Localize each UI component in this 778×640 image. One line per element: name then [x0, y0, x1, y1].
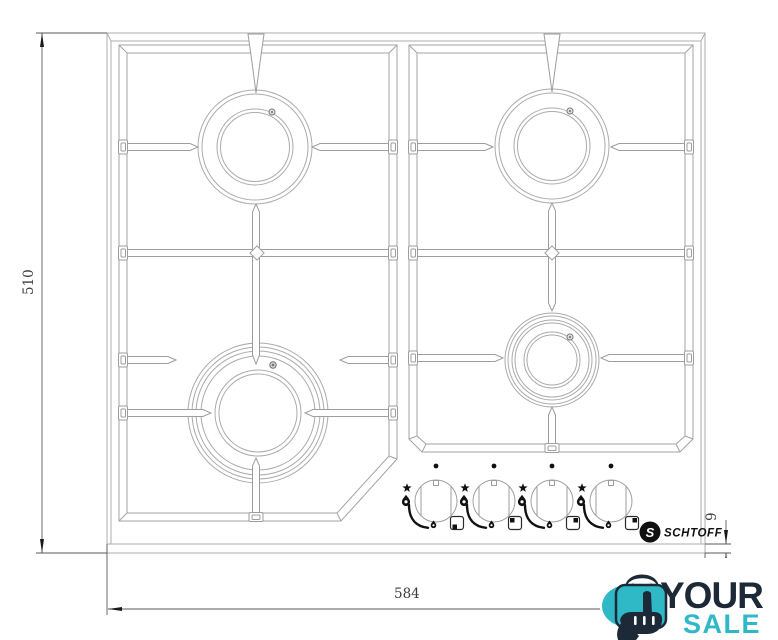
burner-knob-3: [518, 464, 580, 530]
ignition-electrode-icon: [270, 362, 276, 368]
ignition-electrode-icon: [567, 334, 573, 340]
ignition-electrode-icon: [567, 108, 573, 114]
brand-logo: S SCHTOFF: [640, 522, 723, 543]
watermark-word-bottom: SALE: [683, 609, 761, 639]
burner-bottom-right: [505, 313, 599, 407]
burner-top-left: [198, 90, 312, 204]
front-edge-lip: [107, 544, 705, 553]
ignition-indicator: [633, 518, 638, 523]
dim-width-label: 584: [394, 586, 420, 602]
brand-monogram: S: [646, 525, 655, 540]
ignition-indicator: [453, 525, 458, 530]
control-panel: [402, 464, 639, 530]
brand-name: SCHTOFF: [664, 528, 723, 540]
dimension-height: 510: [21, 33, 107, 553]
ignition-indicator: [510, 518, 515, 523]
burner-knob-2: [460, 464, 522, 530]
ignition-indicator: [574, 518, 579, 523]
ignition-electrode-icon: [269, 109, 275, 115]
burner-knob-1: [402, 464, 464, 530]
left-grate: [119, 34, 398, 522]
burner-top-right: [495, 89, 609, 203]
dim-height-label: 510: [21, 269, 37, 295]
dim-front-edge-label: 9: [704, 512, 720, 521]
gas-hob-drawing: S SCHTOFF 510 584 9: [0, 0, 778, 640]
burner-knob-4: [577, 464, 639, 530]
cooktop-body: [107, 33, 705, 553]
watermark-logo: YOUR SALE: [600, 558, 778, 640]
technical-drawing-page: S SCHTOFF 510 584 9: [0, 0, 778, 640]
right-grate: [409, 34, 694, 453]
